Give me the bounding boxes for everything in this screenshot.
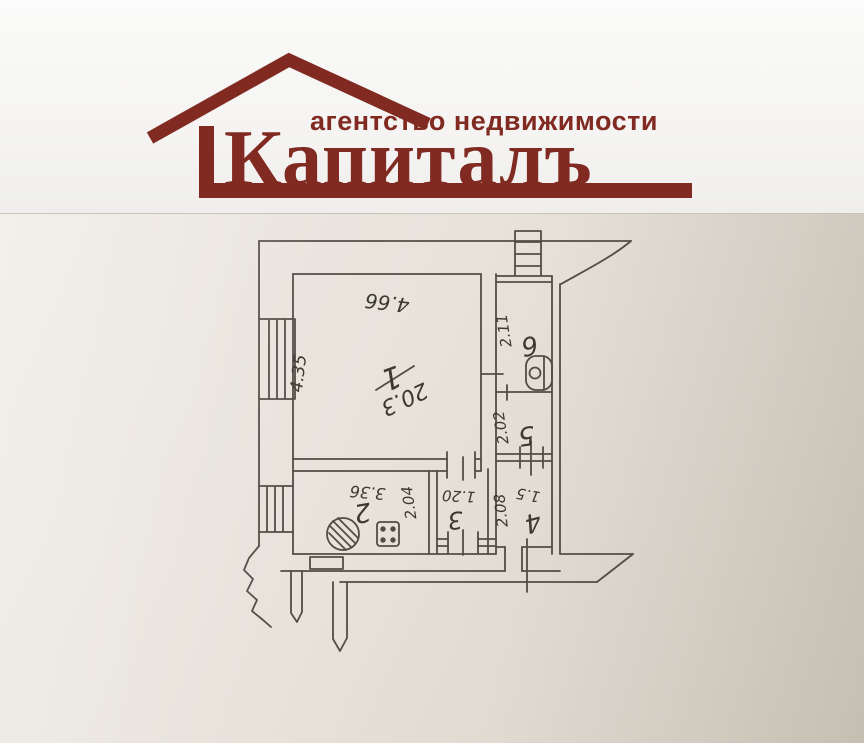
dim-left-label: 4.35: [287, 353, 311, 393]
wall-room1-bottom: [293, 459, 481, 471]
wall-spike-left: [291, 571, 302, 622]
floorplan-photo: 4.66 4.35 1 20.3 3.36 2 2.04 1.20 3 2.08…: [0, 213, 864, 743]
room4-dim-b: 1.5: [515, 484, 542, 506]
window-icon-kitchen: [259, 486, 293, 532]
room3-dim: 1.20: [442, 486, 476, 506]
agency-header: агентство недвижимости Капиталъ: [0, 0, 864, 213]
torn-edge-top-right: [561, 241, 631, 284]
wall-kitchen-right: [429, 471, 437, 554]
room4-number: 4: [521, 505, 545, 538]
room6-dim: 2.11: [493, 313, 516, 349]
door-jambs-entrance: [505, 547, 522, 571]
room2-dim-b: 2.04: [398, 485, 420, 521]
wall-room6-top: [496, 276, 552, 282]
screenshot: агентство недвижимости Капиталъ: [0, 0, 864, 742]
room4-dim-a: 2.08: [490, 493, 511, 528]
plan-walls: [244, 231, 633, 651]
ladder-icon: [515, 231, 541, 276]
agency-logo: агентство недвижимости Капиталъ: [120, 42, 720, 210]
door-jambs-room1-hall: [447, 452, 475, 478]
wall-spike-right: [333, 582, 347, 651]
room6-number: 6: [519, 329, 541, 361]
room5-number: 5: [516, 419, 537, 451]
plan-labels: 4.66 4.35 1 20.3 3.36 2 2.04 1.20 3 2.08…: [287, 288, 545, 538]
floorplan-drawing: 4.66 4.35 1 20.3 3.36 2 2.04 1.20 3 2.08…: [0, 214, 864, 743]
stove-icon: [377, 522, 399, 546]
room3-number: 3: [446, 505, 464, 534]
sink-icon: [327, 518, 359, 550]
agency-brand: Капиталъ: [224, 115, 593, 203]
torn-edge-bottom-left: [244, 546, 271, 627]
vent-shaft: [310, 557, 343, 569]
wall-right-outer: [552, 276, 560, 554]
dim-top-label: 4.66: [364, 288, 411, 317]
room5-dim: 2.02: [490, 410, 513, 446]
landing-diagonal-edge: [597, 554, 633, 582]
